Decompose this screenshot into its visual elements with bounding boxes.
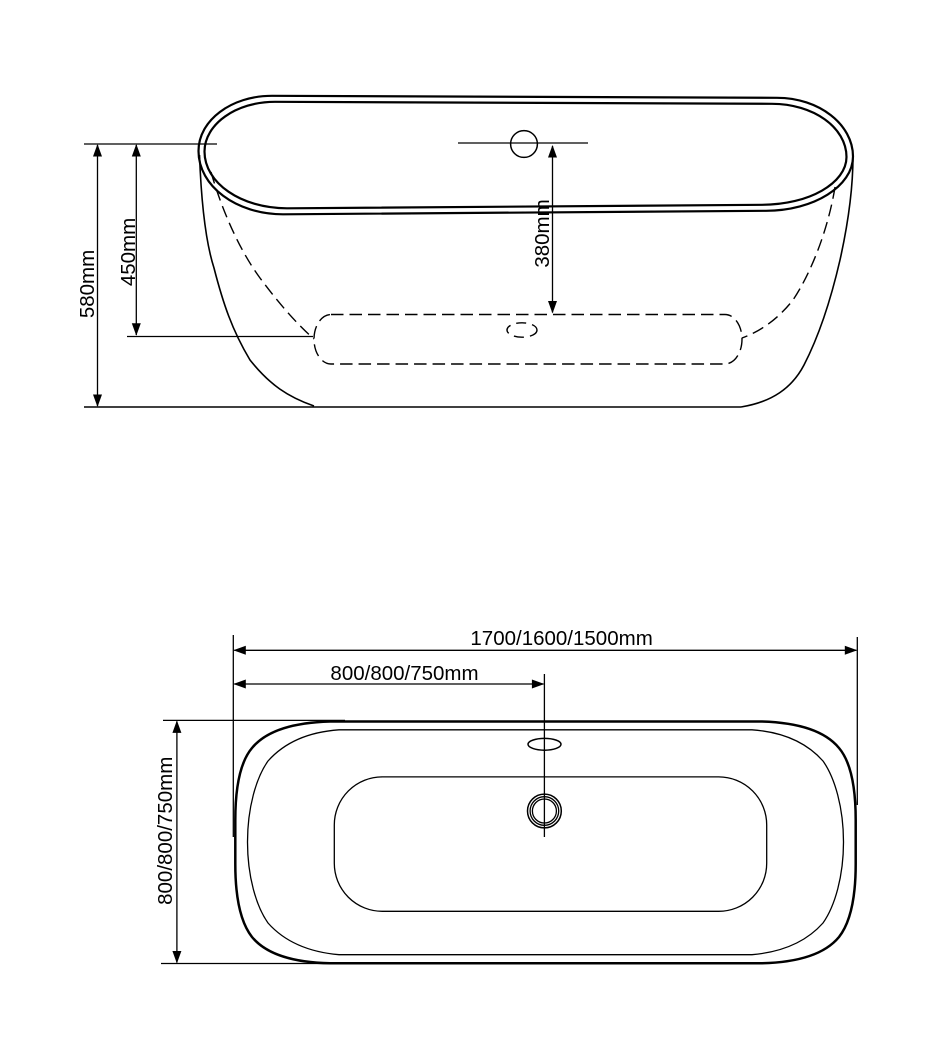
svg-text:800/800/750mm: 800/800/750mm	[330, 662, 478, 685]
svg-text:380mm: 380mm	[531, 199, 554, 267]
svg-text:450mm: 450mm	[117, 218, 140, 286]
svg-text:1700/1600/1500mm: 1700/1600/1500mm	[470, 627, 652, 650]
svg-text:580mm: 580mm	[76, 250, 99, 318]
svg-text:800/800/750mm: 800/800/750mm	[154, 757, 177, 905]
